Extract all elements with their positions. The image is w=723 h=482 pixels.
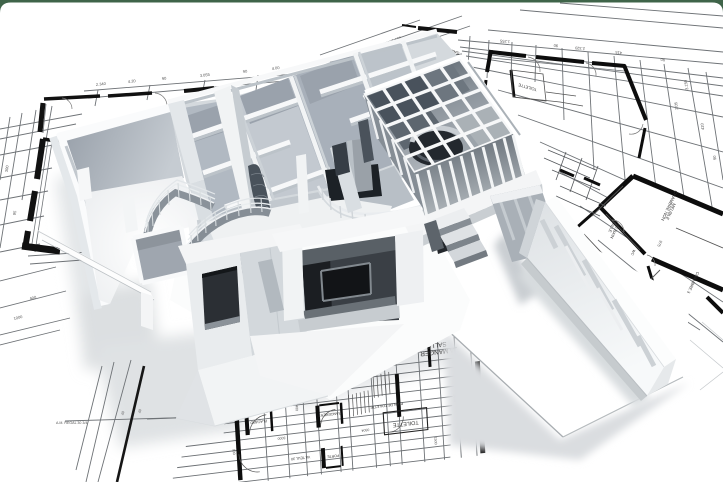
svg-text:40: 40	[138, 409, 143, 414]
svg-text:40: 40	[121, 411, 126, 416]
svg-text:1500: 1500	[433, 436, 437, 444]
svg-text:4.20: 4.20	[128, 78, 137, 84]
svg-text:A.M. REGAL 30 3/4: A.M. REGAL 30 3/4	[56, 421, 87, 425]
svg-text:1.255: 1.255	[499, 39, 510, 45]
svg-text:900: 900	[232, 449, 236, 455]
